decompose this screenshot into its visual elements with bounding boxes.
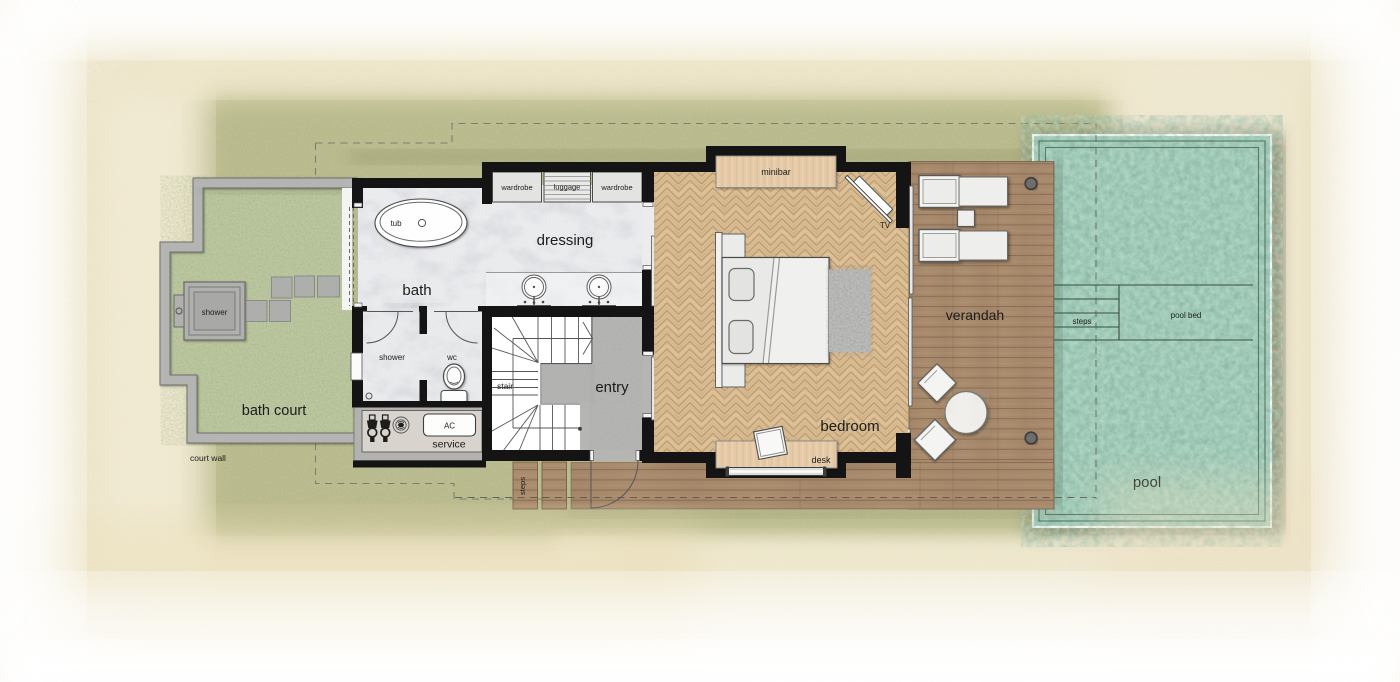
svg-text:TV: TV	[880, 221, 891, 230]
svg-text:entry: entry	[595, 379, 629, 396]
svg-text:steps: steps	[518, 477, 527, 495]
svg-text:court wall: court wall	[190, 453, 226, 463]
svg-text:shower: shower	[202, 308, 228, 317]
svg-text:minibar: minibar	[761, 167, 791, 177]
svg-text:desk: desk	[811, 455, 831, 465]
svg-text:pool bed: pool bed	[1171, 311, 1202, 320]
svg-text:stair: stair	[497, 381, 513, 391]
svg-text:wardrobe: wardrobe	[500, 183, 532, 192]
svg-text:service: service	[432, 439, 465, 451]
svg-text:AC: AC	[444, 422, 455, 431]
svg-text:luggage: luggage	[554, 183, 581, 192]
svg-text:verandah: verandah	[946, 307, 1004, 323]
svg-text:bath: bath	[402, 282, 431, 299]
svg-text:steps: steps	[1072, 317, 1091, 326]
svg-text:bath court: bath court	[242, 403, 307, 419]
svg-text:bedroom: bedroom	[820, 418, 879, 435]
svg-text:shower: shower	[379, 353, 405, 362]
svg-text:wc: wc	[446, 353, 457, 362]
svg-text:tub: tub	[390, 219, 402, 228]
svg-text:dressing: dressing	[537, 232, 594, 249]
svg-text:wardrobe: wardrobe	[600, 183, 632, 192]
